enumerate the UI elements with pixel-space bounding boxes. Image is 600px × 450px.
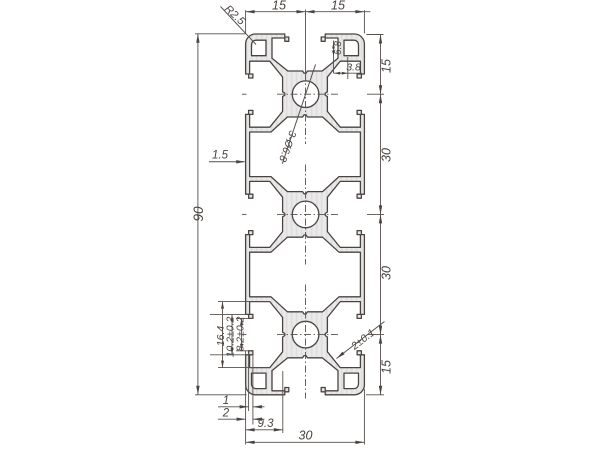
svg-text:30: 30	[380, 266, 394, 280]
svg-text:15: 15	[331, 0, 345, 13]
svg-text:15: 15	[380, 59, 394, 73]
svg-text:15: 15	[380, 360, 394, 374]
svg-text:2: 2	[222, 408, 230, 420]
svg-text:8.2±0.2: 8.2±0.2	[235, 316, 247, 351]
svg-text:30: 30	[380, 148, 394, 162]
svg-text:1: 1	[223, 395, 229, 407]
svg-text:3.8: 3.8	[346, 62, 361, 74]
svg-text:6.8: 6.8	[333, 41, 344, 55]
svg-text:30: 30	[299, 429, 313, 443]
svg-text:15: 15	[272, 0, 286, 13]
svg-text:90: 90	[191, 206, 206, 222]
svg-text:1.5: 1.5	[212, 150, 229, 162]
svg-text:9.3: 9.3	[258, 418, 275, 430]
